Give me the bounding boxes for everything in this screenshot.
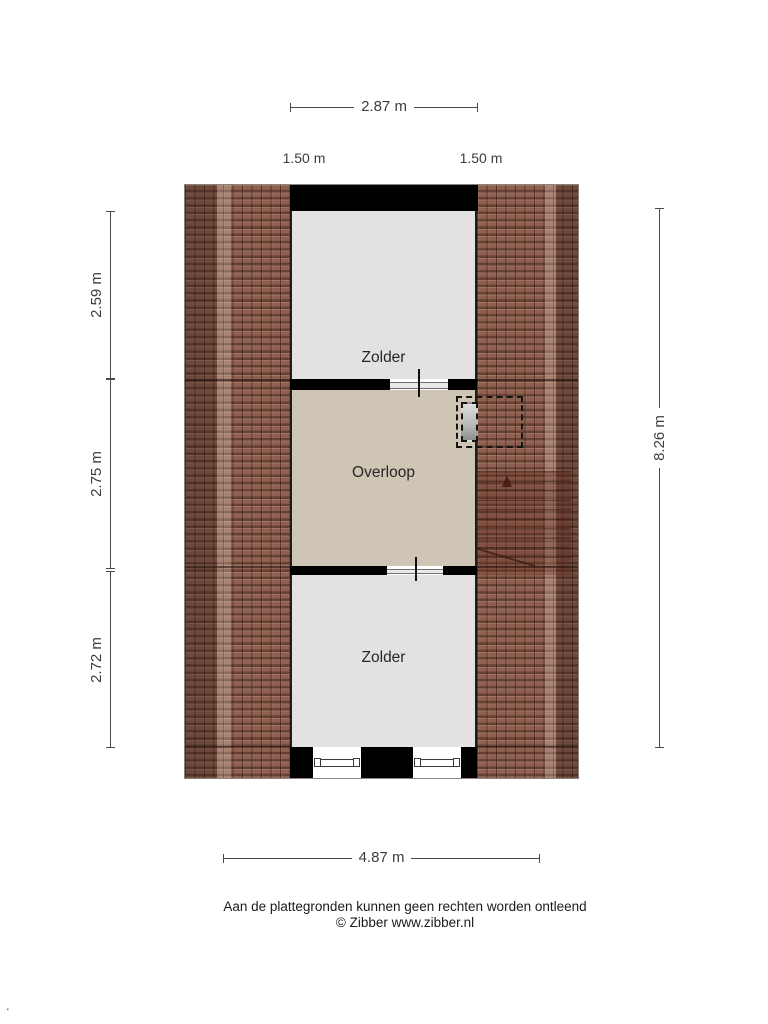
roof-division-line: [185, 746, 290, 748]
dimension-left-upper-label: 2.59 m: [88, 265, 106, 325]
roof-division-line: [477, 746, 578, 748]
dimension-right: [655, 208, 664, 748]
dimension-line: [224, 858, 352, 859]
stairs-cut-line: [477, 548, 535, 567]
window-glazing: [319, 759, 355, 767]
wall-top: [290, 185, 478, 211]
dimension-left-upper: [106, 211, 115, 379]
dimension-line: [659, 208, 660, 748]
dimension-line: [110, 211, 111, 379]
roof-left-ridge-band: [217, 185, 231, 778]
dimension-line: [110, 571, 111, 748]
footer-copyright: © Zibber www.zibber.nl: [336, 915, 474, 930]
dimension-roof-left-label: 1.50 m: [283, 150, 326, 166]
floorplan: Zolder Overloop Zolder: [185, 185, 578, 778]
dimension-bottom: 4.87 m: [223, 849, 540, 867]
wall-overloop-zolder: [290, 566, 477, 575]
dimension-left-middle-label: 2.75 m: [88, 444, 106, 504]
roof-left: [185, 185, 290, 778]
dimension-line: [291, 107, 354, 108]
dimension-tick: [477, 103, 478, 112]
dimension-left-lower: [106, 571, 115, 748]
dimension-left-lower-label: 2.72 m: [88, 630, 106, 690]
roof-division-line: [477, 379, 578, 381]
dimension-top: 2.87 m: [290, 98, 478, 116]
dimension-right-label: 8.26 m: [651, 408, 669, 468]
roof-division-line: [185, 566, 290, 568]
window-right: [413, 747, 461, 778]
dimension-tick: [539, 854, 540, 863]
room-label-overloop: Overloop: [290, 464, 477, 482]
staircase: [477, 471, 571, 575]
corner-dot: .: [6, 998, 10, 1013]
roof-left-outer-band: [185, 185, 217, 778]
window-left: [313, 747, 361, 778]
dimension-left-middle: [106, 379, 115, 569]
stairs-up-arrow-icon: [502, 475, 512, 487]
window-glazing: [419, 759, 455, 767]
wall-zolder-overloop: [290, 379, 477, 390]
floorplan-page: 2.87 m 1.50 m 1.50 m 2.59 m 2.75 m 2.72 …: [0, 0, 768, 1024]
door-swing-mark: [415, 557, 417, 581]
dimension-roof-right-label: 1.50 m: [460, 150, 503, 166]
door-swing-mark: [418, 369, 420, 397]
dimension-bottom-label: 4.87 m: [352, 849, 412, 867]
dimension-top-label: 2.87 m: [354, 98, 414, 116]
room-label-zolder-bottom: Zolder: [290, 649, 477, 667]
wall-bottom: [290, 747, 477, 778]
footer-disclaimer: Aan de plattegronden kunnen geen rechten…: [223, 899, 586, 914]
dimension-line: [414, 107, 477, 108]
roof-division-line: [185, 379, 290, 381]
room-label-zolder-top: Zolder: [290, 349, 477, 367]
dimension-line: [411, 858, 539, 859]
dimension-line: [110, 379, 111, 569]
duct-dashed-box: [461, 402, 478, 442]
